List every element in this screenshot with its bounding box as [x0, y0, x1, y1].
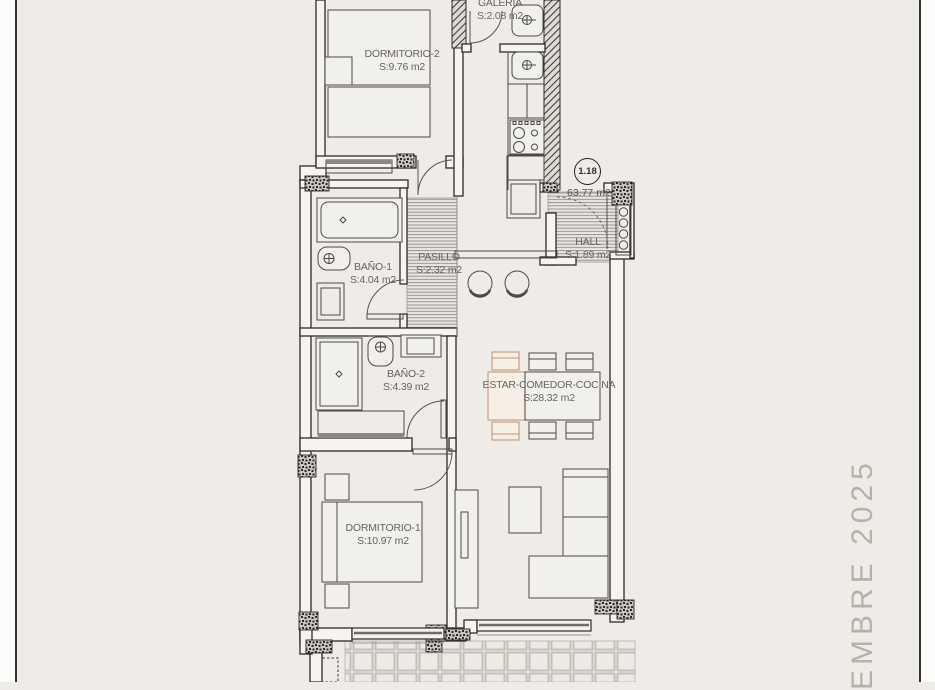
room-name: BAÑO-2	[383, 368, 429, 381]
toilet-icon	[368, 336, 393, 366]
room-area: S:4.39 m2	[383, 381, 429, 394]
door-bano2	[407, 400, 446, 438]
room-name: BAÑO-1	[350, 261, 396, 274]
label-pasillo: PASILLO S:2.32 m2	[416, 251, 462, 277]
room-name: PASILLO	[416, 251, 462, 264]
bar-stool	[505, 271, 529, 296]
bathtub-icon	[317, 198, 402, 242]
label-bano2: BAÑO-2 S:4.39 m2	[383, 368, 429, 394]
label-dormitorio1: DORMITORIO-1 S:10.97 m2	[346, 522, 421, 548]
label-galeria: GALERIA S:2.08 m2	[477, 0, 523, 23]
label-dormitorio2: DORMITORIO-2 S:9.76 m2	[365, 48, 440, 74]
door-dormitorio1	[413, 449, 452, 490]
total-area-label: 63.77 m2	[567, 187, 611, 199]
room-area: S:2.08 m2	[477, 10, 523, 23]
label-bano1: BAÑO-1 S:4.04 m2	[350, 261, 396, 287]
kitchen-appliance	[507, 156, 544, 218]
sheet-date-note: EMBRE 2025	[846, 458, 880, 690]
room-name: DORMITORIO-2	[365, 48, 440, 61]
label-hall: HALL S:1.89 m2	[565, 236, 611, 262]
room-area: S:4.04 m2	[350, 274, 396, 287]
room-area: S:28.32 m2	[483, 392, 616, 405]
room-name: ESTAR-COMEDOR-COCINA	[483, 379, 616, 392]
room-name: GALERIA	[477, 0, 523, 10]
bath2-cabinet	[318, 411, 404, 438]
room-name: HALL	[565, 236, 611, 249]
room-name: DORMITORIO-1	[346, 522, 421, 535]
floor-plan-drawing	[0, 0, 935, 682]
coffee-table	[509, 487, 541, 533]
window-living	[477, 620, 591, 635]
stove-icon	[510, 120, 544, 154]
bidet-icon	[317, 283, 344, 320]
room-area: S:1.89 m2	[565, 249, 611, 262]
washbasin-icon	[401, 335, 441, 357]
plan-sheet: DORMITORIO-2 S:9.76 m2 GALERIA S:2.08 m2…	[0, 0, 935, 682]
bar-stool	[468, 271, 492, 296]
room-area: S:9.76 m2	[365, 61, 440, 74]
toilet-icon	[318, 247, 350, 270]
tv-cabinet	[455, 490, 478, 608]
terrace-tiles	[318, 641, 635, 682]
room-area: S:2.32 m2	[416, 264, 462, 277]
shower-icon	[316, 338, 362, 410]
room-area: S:10.97 m2	[346, 535, 421, 548]
unit-number-badge: 1.18	[574, 158, 601, 185]
kitchen-sink	[512, 52, 543, 79]
label-estar: ESTAR-COMEDOR-COCINA S:28.32 m2	[483, 379, 616, 405]
